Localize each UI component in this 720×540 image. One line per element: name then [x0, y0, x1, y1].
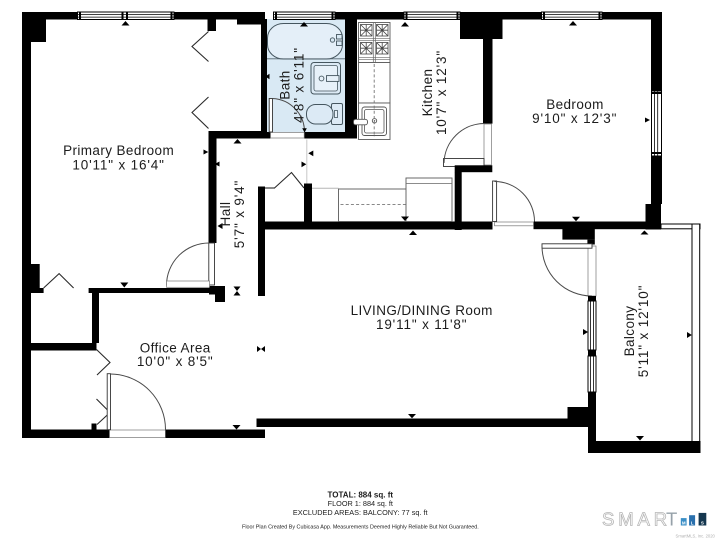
svg-text:S: S — [701, 521, 704, 526]
svg-text:L: L — [691, 521, 694, 526]
svg-text:10'7" x 12'3": 10'7" x 12'3" — [434, 50, 449, 135]
svg-text:M: M — [682, 521, 686, 526]
svg-text:EXCLUDED AREAS: BALCONY: 77 sq: EXCLUDED AREAS: BALCONY: 77 sq. ft — [293, 508, 428, 517]
svg-text:TOTAL: 884 sq. ft: TOTAL: 884 sq. ft — [328, 490, 394, 499]
svg-text:5'11" x 12'10": 5'11" x 12'10" — [636, 285, 651, 377]
svg-text:Bath: Bath — [278, 70, 293, 99]
svg-text:Kitchen: Kitchen — [420, 69, 435, 117]
svg-text:LIVING/DINING Room: LIVING/DINING Room — [351, 303, 493, 318]
svg-text:Hall: Hall — [218, 202, 233, 227]
svg-text:10'0" x 8'5": 10'0" x 8'5" — [137, 354, 214, 369]
svg-text:SmartMLS, Inc. 2020: SmartMLS, Inc. 2020 — [676, 534, 716, 539]
svg-text:Balcony: Balcony — [622, 306, 637, 357]
svg-text:9'10" x 12'3": 9'10" x 12'3" — [532, 111, 617, 126]
svg-text:SMAR: SMAR — [602, 509, 671, 530]
svg-text:Bedroom: Bedroom — [546, 97, 604, 112]
svg-text:FLOOR 1: 884 sq. ft: FLOOR 1: 884 sq. ft — [328, 499, 393, 508]
svg-text:4'8" x 6'11": 4'8" x 6'11" — [292, 47, 307, 123]
svg-text:5'7" x 9'4": 5'7" x 9'4" — [232, 180, 247, 248]
svg-text:10'11" x 16'4": 10'11" x 16'4" — [72, 157, 164, 172]
svg-text:Floor Plan Created By Cubicasa: Floor Plan Created By Cubicasa App. Meas… — [242, 525, 479, 531]
svg-text:19'11" x 11'8": 19'11" x 11'8" — [376, 317, 467, 332]
svg-text:T: T — [666, 509, 677, 530]
svg-text:Primary Bedroom: Primary Bedroom — [63, 143, 174, 158]
